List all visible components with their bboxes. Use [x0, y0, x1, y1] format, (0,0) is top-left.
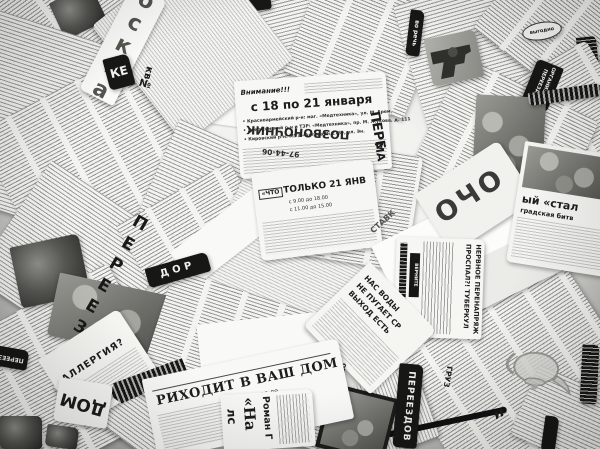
vernite-text: ВЕРНИТЕ	[412, 263, 417, 287]
logo-letters: КЕ	[109, 64, 130, 80]
movers-vertical-text: ПЕРЕЕЗДОВ	[400, 370, 415, 441]
dom-clipping: ДОМ	[53, 377, 113, 429]
photo-clipping	[45, 424, 80, 449]
headline-prospal: ПРОСПАЛ?! ТУБЕРКУЛ	[462, 244, 471, 329]
newspaper-collage-photo: во речь выгодно ОРГАНИЗАЦИЯ ПЕРЕЕЗДОВ ый…	[0, 0, 600, 449]
fine-print	[262, 209, 377, 255]
author-name: Роман Г	[260, 396, 273, 440]
word-fragment: лс	[225, 408, 238, 425]
headline-nervnoe: НЕРВНОЕ ПЕРЕНАПРЯЖ	[472, 244, 482, 334]
schedule-ad: «ЧТО ТОЛЬКО 21 ЯНВ с 9.00 до 18.00 с 11.…	[251, 159, 383, 261]
attention-label: Внимание!!!	[240, 87, 290, 97]
fine-print	[276, 393, 311, 444]
strip-label: во речь	[410, 20, 419, 47]
teapot-icon	[495, 336, 579, 404]
photo-clipping	[0, 416, 42, 449]
word-fragment: МА	[373, 141, 387, 162]
roman-clipping: лс «На Роман Г	[220, 389, 316, 449]
article-body	[511, 217, 600, 273]
dom-headline: ДОМ	[58, 388, 107, 417]
vernite-box: ВЕРНИТЕ	[409, 253, 421, 297]
black-column-strip	[579, 344, 599, 405]
movers-label-text: ПЕРЕЕЗ	[0, 353, 24, 363]
label-box: «ЧТО	[258, 187, 283, 200]
stamp-label: выгодно	[529, 26, 554, 35]
schedule-line: с 11.00 до 15.00	[290, 203, 333, 213]
only-date-headline: ТОЛЬКО 21 ЯНВ	[283, 177, 367, 196]
teapot-sketch	[495, 336, 579, 404]
title-fragment: «На	[240, 397, 257, 431]
